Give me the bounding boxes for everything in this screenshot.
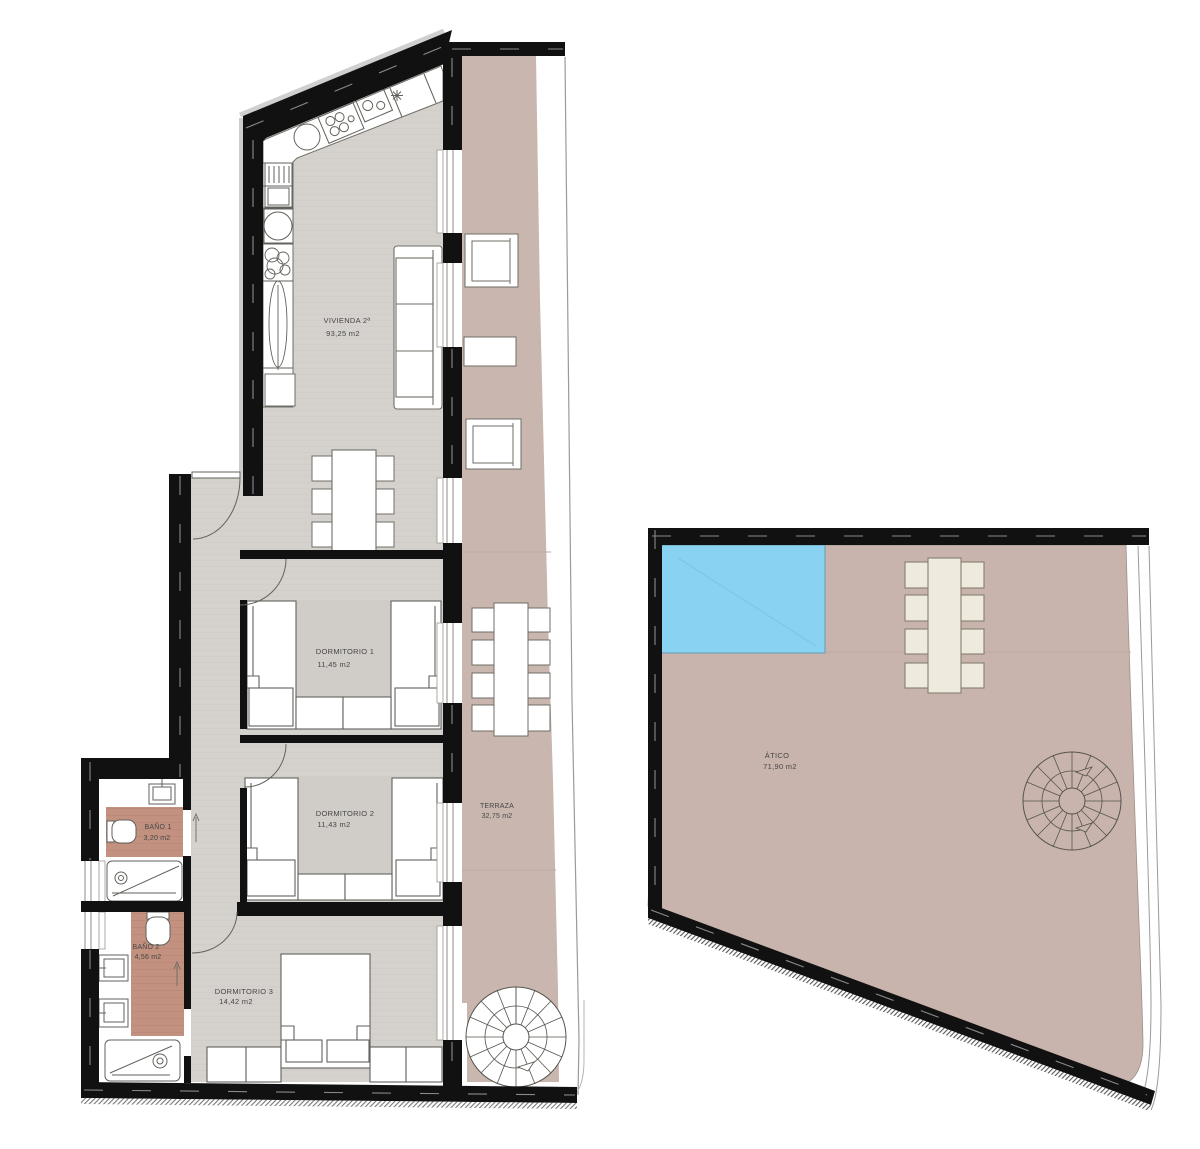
svg-text:14,42 m2: 14,42 m2 [219, 997, 253, 1006]
svg-text:BAÑO 1: BAÑO 1 [145, 822, 172, 831]
svg-text:TERRAZA: TERRAZA [480, 803, 514, 810]
svg-text:93,25 m2: 93,25 m2 [326, 329, 360, 338]
svg-text:BAÑO 2: BAÑO 2 [133, 942, 160, 951]
svg-text:3,20 m2: 3,20 m2 [144, 835, 171, 842]
svg-text:32,75 m2: 32,75 m2 [482, 813, 513, 820]
svg-text:4,56 m2: 4,56 m2 [135, 954, 162, 961]
svg-text:DORMITORIO 2: DORMITORIO 2 [316, 809, 374, 818]
svg-text:DORMITORIO 3: DORMITORIO 3 [215, 987, 273, 996]
svg-text:11,45 m2: 11,45 m2 [317, 660, 350, 669]
svg-text:VIVIENDA 2ª: VIVIENDA 2ª [324, 316, 371, 325]
svg-text:ÁTICO: ÁTICO [765, 751, 789, 760]
svg-text:DORMITORIO 1: DORMITORIO 1 [316, 647, 374, 656]
svg-text:11,43 m2: 11,43 m2 [317, 820, 350, 829]
svg-text:71,90 m2: 71,90 m2 [763, 762, 797, 771]
